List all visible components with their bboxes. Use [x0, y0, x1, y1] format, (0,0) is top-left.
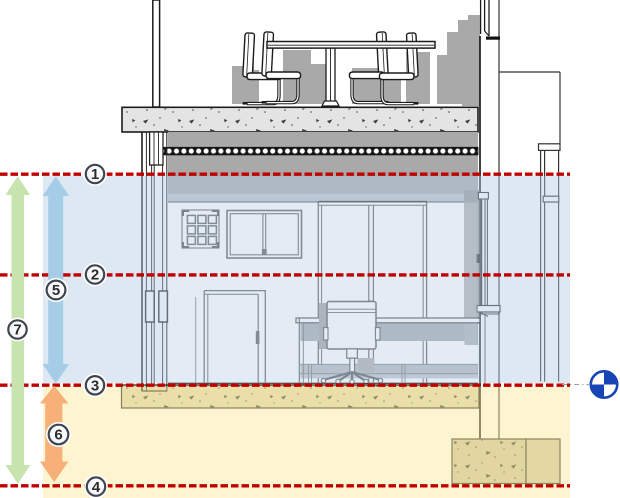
svg-text:7: 7: [13, 322, 21, 339]
svg-text:6: 6: [54, 427, 62, 444]
svg-text:5: 5: [52, 282, 60, 299]
svg-text:1: 1: [91, 166, 99, 183]
svg-text:3: 3: [91, 378, 99, 395]
svg-text:4: 4: [92, 479, 101, 496]
svg-text:2: 2: [91, 267, 99, 284]
